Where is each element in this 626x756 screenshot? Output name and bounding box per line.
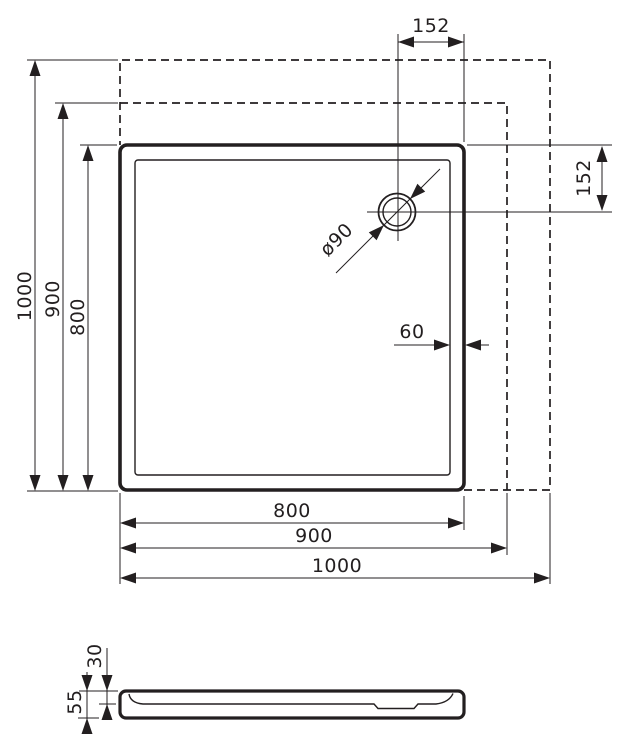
plan-view: ø90 152 152 1000 bbox=[14, 15, 612, 584]
arrowhead bbox=[448, 37, 464, 48]
dim-label-width-800: 800 bbox=[273, 500, 311, 522]
arrowhead bbox=[102, 704, 113, 720]
arrowhead bbox=[120, 543, 136, 554]
arrowhead bbox=[82, 675, 93, 691]
dim-label-drain-offset-top: 152 bbox=[412, 15, 450, 37]
dim-label-height-900: 900 bbox=[42, 280, 64, 318]
dim-label-basin-depth: 30 bbox=[84, 643, 106, 668]
arrowhead bbox=[58, 475, 69, 491]
arrowhead bbox=[30, 475, 41, 491]
arrowhead bbox=[534, 573, 550, 584]
side-view: 30 55 bbox=[64, 643, 464, 734]
arrowhead bbox=[597, 146, 608, 162]
dim-total-height: 55 bbox=[64, 672, 93, 734]
arrowhead bbox=[102, 675, 113, 691]
dim-height-1000: 1000 bbox=[14, 60, 118, 491]
dim-drain-offset-top: 152 bbox=[398, 15, 464, 142]
dim-label-height-800: 800 bbox=[67, 298, 89, 336]
dim-height-800: 800 bbox=[67, 145, 117, 491]
arrowhead bbox=[120, 518, 136, 529]
dim-drain-offset-right: 152 bbox=[467, 145, 612, 211]
arrowhead bbox=[120, 573, 136, 584]
dim-label-total-height: 55 bbox=[64, 689, 86, 714]
arrowhead bbox=[83, 145, 94, 161]
arrowhead bbox=[30, 60, 41, 76]
dim-width-1000: 1000 bbox=[120, 493, 550, 584]
arrowhead bbox=[83, 475, 94, 491]
arrowhead bbox=[491, 543, 507, 554]
dim-width-800: 800 bbox=[120, 496, 464, 530]
dim-height-900: 900 bbox=[42, 103, 118, 491]
arrowhead bbox=[398, 37, 414, 48]
dim-label-width-1000: 1000 bbox=[312, 555, 362, 577]
arrowhead bbox=[448, 518, 464, 529]
dim-label-height-1000: 1000 bbox=[14, 271, 36, 321]
technical-drawing-page: ø90 152 152 1000 bbox=[0, 0, 626, 756]
dim-label-drain-offset-right: 152 bbox=[573, 159, 595, 197]
arrowhead bbox=[58, 103, 69, 119]
dim-label-rim-width: 60 bbox=[399, 321, 424, 343]
shower-tray-drawing: ø90 152 152 1000 bbox=[0, 0, 626, 756]
dim-label-width-900: 900 bbox=[295, 525, 333, 547]
arrowhead bbox=[82, 718, 93, 734]
arrowhead bbox=[597, 195, 608, 211]
arrowhead bbox=[465, 340, 481, 351]
